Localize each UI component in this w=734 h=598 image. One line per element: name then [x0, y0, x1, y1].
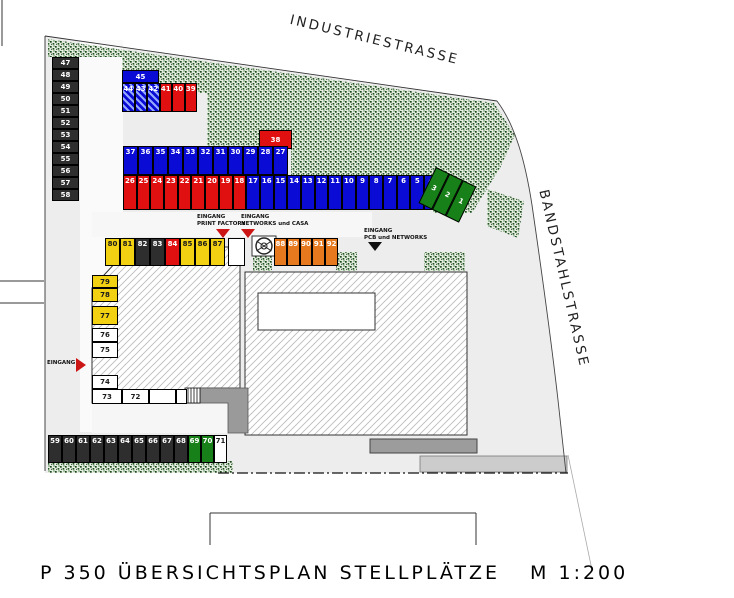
label-layer: EINGANGPRINT FACTORYEINGANGNETWORKS und …	[0, 0, 734, 598]
entrance-networks-casa-arrow-icon	[241, 229, 255, 238]
entrance-pcb-networks-arrow-icon	[368, 242, 382, 251]
plan-title: P 350 ÜBERSICHTSPLAN STELLPLÄTZE	[40, 562, 500, 584]
entrance-west-arrow-icon	[76, 358, 86, 372]
title-bar: P 350 ÜBERSICHTSPLAN STELLPLÄTZE M 1:200	[40, 562, 628, 584]
scale-label: M 1:200	[530, 562, 628, 584]
entrance-print-factory-label: EINGANGPRINT FACTORY	[197, 214, 245, 227]
site-plan: 4748495051525354555657584544434241403938…	[0, 0, 734, 598]
entrance-print-factory-arrow-icon	[216, 229, 230, 238]
entrance-networks-casa-label: EINGANGNETWORKS und CASA	[241, 214, 308, 227]
entrance-pcb-networks-label: EINGANGPCB und NETWORKS	[364, 228, 427, 241]
entrance-west-label: EINGANG	[47, 360, 75, 367]
